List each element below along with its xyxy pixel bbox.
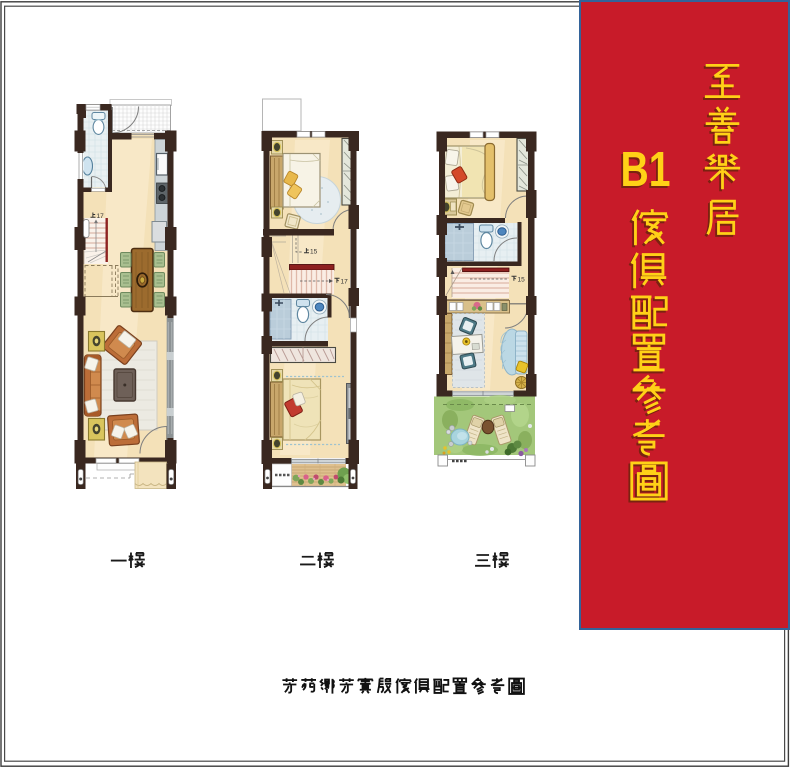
- svg-text:B1: B1: [620, 143, 670, 197]
- svg-text:15: 15: [518, 277, 526, 284]
- svg-text:15: 15: [310, 249, 318, 256]
- svg-text:17: 17: [97, 213, 105, 220]
- svg-text:17: 17: [341, 279, 349, 286]
